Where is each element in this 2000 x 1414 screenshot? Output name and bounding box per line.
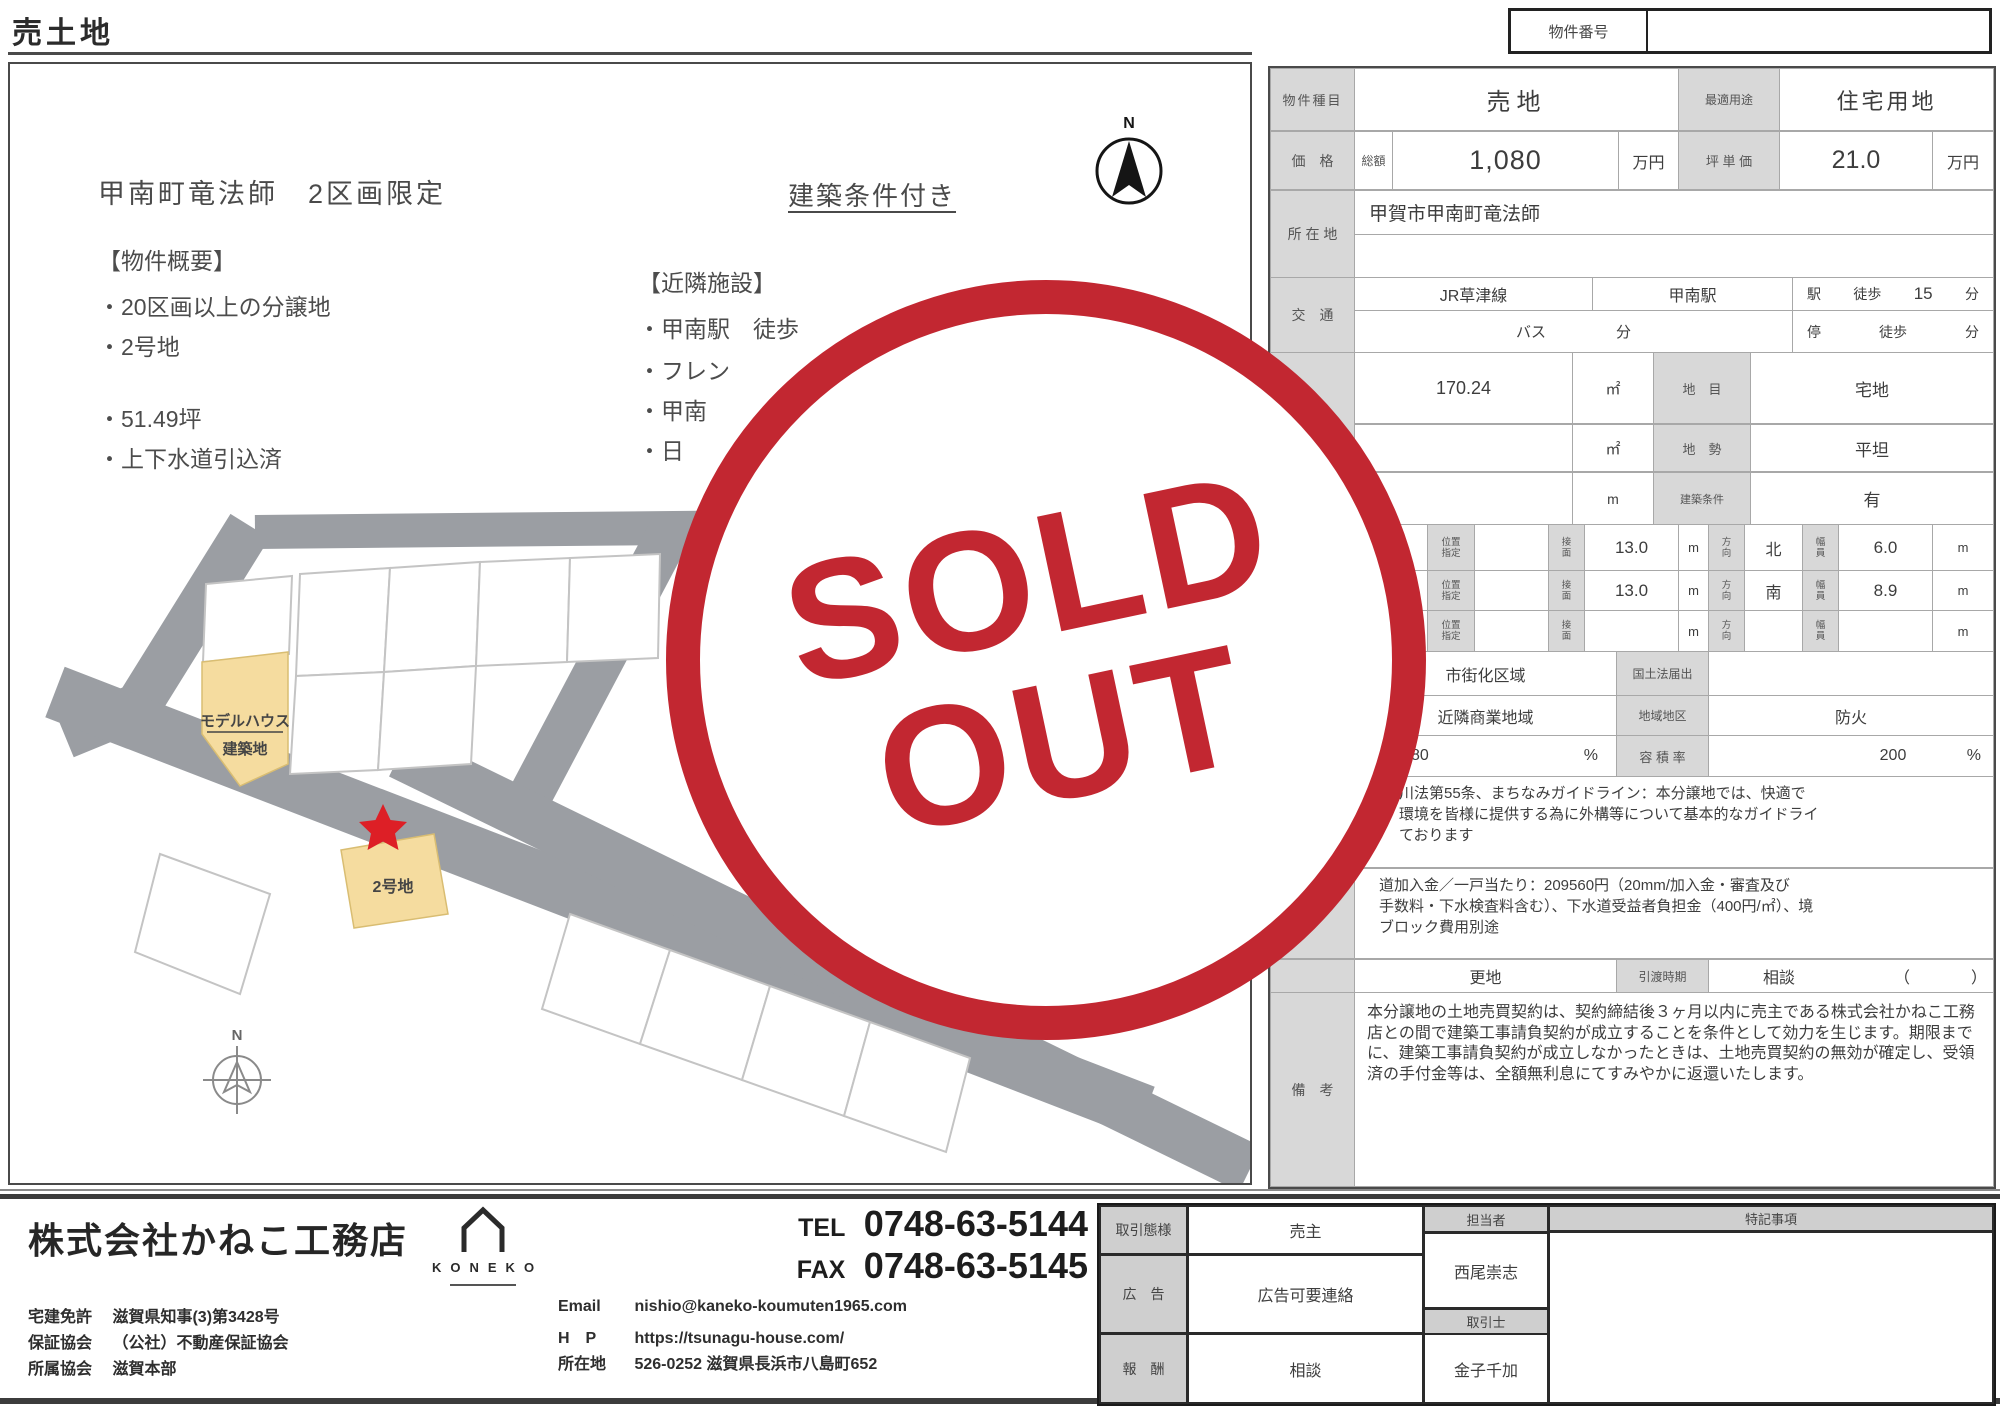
tel-number: 0748-63-5144: [864, 1203, 1088, 1244]
unit-cell: ㎡: [1572, 424, 1654, 472]
company-name: 株式会社かねこ工務店: [28, 1212, 408, 1264]
license-label: 所属協会: [28, 1361, 92, 1378]
district-area-label: 地域地区: [1616, 695, 1709, 736]
unit-m: m: [1932, 570, 1994, 611]
bus-row: バス 分: [1354, 310, 1793, 353]
frontage-value: 13.0: [1584, 570, 1679, 611]
overview-title: 【物件概要】: [98, 242, 236, 276]
model-house-label-2: 建築地: [222, 740, 267, 758]
bus-min-word: 分: [1616, 321, 1631, 342]
pos1: 位置: [1441, 580, 1460, 591]
width-label: 幅員: [1802, 524, 1839, 571]
land-category-value: 宅地: [1750, 352, 1994, 424]
best-use-label: 最適用途: [1678, 68, 1780, 131]
pos2: 指定: [1441, 548, 1460, 559]
license-row: 所属協会 滋賀本部: [28, 1355, 176, 1379]
nearby-title: 【近隣施設】: [638, 264, 776, 298]
license-label: 保証協会: [28, 1335, 92, 1352]
tel-row: TEL 0748-63-5144: [700, 1203, 1088, 1245]
flyer-page: 売土地 物件番号: [0, 0, 2000, 1414]
national-land-law-label: 国土法届出: [1616, 651, 1709, 696]
address-value: 甲賀市甲南町竜法師: [1354, 190, 1994, 235]
wid1: 幅: [1816, 620, 1826, 631]
wid2: 員: [1816, 591, 1826, 602]
nearby-item: ・甲南駅 徒歩: [638, 310, 799, 344]
contact-row: Email nishio@kaneko-koumuten1965.com: [558, 1298, 907, 1316]
contact-value: https://tsunagu-house.com/: [634, 1330, 844, 1347]
license-value: 滋賀県知事(3)第3428号: [112, 1309, 279, 1326]
guideline-line: ております: [1399, 825, 1474, 846]
guideline-line: 環境を皆様に提供する為に外構等について基本的なガイドライ: [1399, 804, 1819, 825]
price-unit: 万円: [1618, 131, 1679, 190]
price-label: 価 格: [1270, 131, 1355, 190]
walk-word: 徒歩: [1853, 284, 1881, 304]
compass-small-icon: [203, 1046, 271, 1114]
agent-name: 金子千加: [1423, 1333, 1549, 1404]
compass-big-n: N: [1123, 115, 1135, 132]
contact-value: nishio@kaneko-koumuten1965.com: [634, 1298, 907, 1315]
coverage-pct: %: [1584, 747, 1598, 765]
width-value: [1838, 610, 1933, 652]
width-value: 8.9: [1838, 570, 1933, 611]
dir1: 方: [1722, 620, 1732, 631]
wid1: 幅: [1816, 537, 1826, 548]
staff-header: 担当者: [1423, 1205, 1549, 1233]
build-condition-value: 有: [1750, 472, 1994, 525]
guideline-line: 川法第55条、まちなみガイドライン：本分譲地では、快適で: [1399, 783, 1806, 804]
sta-word: 駅: [1807, 284, 1821, 304]
build-condition-note: 建築条件付き: [788, 176, 956, 213]
property-number-value: [1648, 11, 1989, 51]
current-state-label-hidden: [1270, 959, 1355, 993]
wid1: 幅: [1816, 580, 1826, 591]
unit-m: m: [1932, 610, 1994, 652]
frontage-label: 接面: [1548, 610, 1585, 652]
page-title: 売土地: [12, 8, 114, 52]
fax-row: FAX 0748-63-5145: [700, 1245, 1088, 1287]
land-category-label: 地 目: [1653, 352, 1751, 424]
blank-cell: [1354, 424, 1573, 472]
far-pct: %: [1967, 747, 1981, 765]
unit-m: m: [1678, 570, 1709, 611]
blank-cell: [1474, 570, 1549, 611]
men2: 面: [1562, 631, 1572, 642]
nearby-item: ・フレン: [638, 352, 730, 386]
fire-zone-value: 防火: [1708, 695, 1994, 736]
dir1: 方: [1722, 580, 1732, 591]
direction-value: 南: [1744, 570, 1803, 611]
unit-cell: m: [1572, 472, 1654, 525]
contact-row: 所在地 526-0252 滋賀県長浜市八島町652: [558, 1350, 877, 1374]
guideline-notes: 川法第55条、まちなみガイドライン：本分譲地では、快適で 環境を皆様に提供する為…: [1354, 776, 1994, 868]
current-state-value: 更地: [1354, 959, 1617, 993]
unit-m: m: [1678, 610, 1709, 652]
footer-rule-thick: [0, 1194, 2000, 1199]
row-type-label: 物件種目: [1270, 68, 1355, 131]
paren-open: （: [1894, 964, 1910, 988]
license-value: 滋賀本部: [112, 1361, 176, 1378]
walk-min: 15: [1914, 284, 1933, 304]
license-row: 宅建免許 滋賀県知事(3)第3428号: [28, 1303, 280, 1327]
wid2: 員: [1816, 631, 1826, 642]
road-pos-label: 位置指定: [1427, 524, 1475, 571]
compass-big-icon: [1097, 139, 1161, 203]
overview-item: ・2号地: [98, 328, 180, 362]
overview-item: ・20区画以上の分譲地: [98, 288, 331, 322]
fax-number: 0748-63-5145: [864, 1245, 1088, 1286]
logo-text: KONEKO: [432, 1260, 543, 1275]
men1: 接: [1562, 620, 1572, 631]
delivery-label: 引渡時期: [1616, 959, 1709, 993]
tel-label: TEL: [798, 1214, 845, 1242]
dir2: 向: [1722, 548, 1732, 559]
model-house-label-1: モデルハウス: [200, 712, 290, 730]
pos2: 指定: [1441, 591, 1460, 602]
remarks-text: 本分譲地の土地売買契約は、契約締結後３ヶ月以内に売主である株式会社かねこ工務店と…: [1354, 992, 1994, 1187]
men1: 接: [1562, 537, 1572, 548]
contact-label: 所在地: [558, 1350, 630, 1374]
contact-row: H P https://tsunagu-house.com/: [558, 1324, 844, 1348]
fee-line: 道加入金／一戸当たり：209560円（20mm/加入金・審査及び: [1379, 875, 1790, 896]
frontage-label: 接面: [1548, 524, 1585, 571]
tsubo-price-label: 坪 単 価: [1678, 131, 1780, 190]
special-notes-header: 特記事項: [1548, 1205, 1994, 1232]
ad-label: 広 告: [1099, 1254, 1188, 1334]
paren-close: ）: [1971, 964, 1987, 988]
rail-line: JR草津線: [1354, 277, 1593, 311]
min-word: 分: [1965, 284, 1979, 304]
fax-label: FAX: [797, 1256, 846, 1284]
unit-m: m: [1678, 524, 1709, 571]
license-value: （公社）不動産保証協会: [112, 1335, 288, 1352]
land-area-unit: ㎡: [1572, 352, 1654, 424]
delivery-word: 相談: [1763, 964, 1795, 988]
special-notes-body: [1548, 1231, 1994, 1404]
road-pos-label: 位置指定: [1427, 610, 1475, 652]
sold-out-text: SOLD OUT: [771, 447, 1321, 872]
width-label: 幅員: [1802, 570, 1839, 611]
delivery-value: 相談 （ ）: [1708, 959, 1994, 993]
station-walk: 駅 徒歩 15 分: [1792, 277, 1994, 311]
deal-type-label: 取引態様: [1099, 1205, 1188, 1255]
tsubo-price-unit: 万円: [1932, 131, 1994, 190]
type-value: 売地: [1354, 68, 1679, 131]
compass-small-n: N: [232, 1027, 243, 1044]
floor-area-ratio-label: 容 積 率: [1616, 735, 1709, 777]
far-value: 200: [1880, 747, 1907, 765]
footer-rule-thin: [0, 1189, 2000, 1191]
overview-item: ・上下水道引込済: [98, 440, 282, 474]
logo-tagline: [450, 1284, 516, 1286]
land-area-value: 170.24: [1354, 352, 1573, 424]
men1: 接: [1562, 580, 1572, 591]
road-pos-label: 位置指定: [1427, 570, 1475, 611]
water-fee-notes: 道加入金／一戸当たり：209560円（20mm/加入金・審査及び 手数料・下水検…: [1354, 868, 1994, 959]
contact-label: Email: [558, 1298, 630, 1316]
fee-label: 報 酬: [1099, 1333, 1188, 1404]
sold-out-stamp: SOLD OUT: [666, 280, 1426, 1040]
direction-label: 方向: [1708, 610, 1745, 652]
bus-word: バス: [1516, 321, 1546, 342]
stop-word: 停: [1807, 322, 1821, 342]
license-label: 宅建免許: [28, 1309, 92, 1326]
pos2: 指定: [1441, 631, 1460, 642]
direction-value: [1744, 610, 1803, 652]
men2: 面: [1562, 591, 1572, 602]
contact-value: 526-0252 滋賀県長浜市八島町652: [634, 1356, 877, 1373]
width-value: 6.0: [1838, 524, 1933, 571]
width-label: 幅員: [1802, 610, 1839, 652]
best-use-value: 住宅用地: [1779, 68, 1994, 131]
stop-walk-word: 徒歩: [1879, 322, 1907, 342]
remarks-label: 備 考: [1270, 992, 1355, 1187]
overview-item: ・51.49坪: [98, 400, 202, 434]
fee-line: 手数料・下水検査料含む）、下水道受益者負担金（400円/㎡）、境: [1379, 896, 1813, 917]
dir2: 向: [1722, 631, 1732, 642]
deal-type-value: 売主: [1187, 1205, 1424, 1255]
agent-header: 取引士: [1423, 1308, 1549, 1335]
address-blank: [1354, 234, 1994, 278]
nearby-item: ・甲南: [638, 392, 707, 426]
pos1: 位置: [1441, 537, 1460, 548]
station-name: 甲南駅: [1592, 277, 1793, 311]
price-total-label: 総額: [1354, 131, 1393, 190]
price-value: 1,080: [1392, 131, 1619, 190]
license-row: 保証協会 （公社）不動産保証協会: [28, 1329, 288, 1353]
direction-value: 北: [1744, 524, 1803, 571]
blank-cell: [1474, 524, 1549, 571]
tsubo-price-value: 21.0: [1779, 131, 1933, 190]
frontage-value: 13.0: [1584, 524, 1679, 571]
bus-stop-walk: 停 徒歩 分: [1792, 310, 1994, 353]
deal-table: 取引態様 売主 広 告 広告可要連絡 報 酬 相談 担当者 西尾崇志 取引士 金…: [1097, 1203, 1996, 1406]
stop-min-word: 分: [1965, 322, 1979, 342]
men2: 面: [1562, 548, 1572, 559]
property-number-box: 物件番号: [1508, 8, 1992, 54]
direction-label: 方向: [1708, 570, 1745, 611]
terrain-label: 地 勢: [1653, 424, 1751, 472]
frontage-value: [1584, 610, 1679, 652]
koneko-logo-icon: [452, 1202, 514, 1254]
lot-2-label: 2号地: [373, 877, 414, 896]
floor-area-ratio: 200 %: [1708, 735, 1994, 777]
wid2: 員: [1816, 548, 1826, 559]
address-label: 所 在 地: [1270, 190, 1355, 278]
frontage-label: 接面: [1548, 570, 1585, 611]
direction-label: 方向: [1708, 524, 1745, 571]
title-rule: [8, 52, 1252, 55]
ad-value: 広告可要連絡: [1187, 1254, 1424, 1334]
dir1: 方: [1722, 537, 1732, 548]
build-condition-label: 建築条件: [1653, 472, 1751, 525]
terrain-value: 平坦: [1750, 424, 1994, 472]
blank-cell: [1474, 610, 1549, 652]
fee-line: ブロック費用別途: [1379, 917, 1499, 938]
subdivision-heading: 甲南町竜法師 2区画限定: [98, 172, 446, 211]
unit-m: m: [1932, 524, 1994, 571]
fee-value: 相談: [1187, 1333, 1424, 1404]
property-number-label: 物件番号: [1511, 11, 1648, 51]
contact-label: H P: [558, 1324, 630, 1348]
dir2: 向: [1722, 591, 1732, 602]
nearby-item: ・日: [638, 432, 684, 466]
pos1: 位置: [1441, 620, 1460, 631]
access-label: 交 通: [1270, 277, 1355, 353]
staff-name: 西尾崇志: [1423, 1232, 1549, 1309]
national-land-law-value: [1708, 651, 1994, 696]
